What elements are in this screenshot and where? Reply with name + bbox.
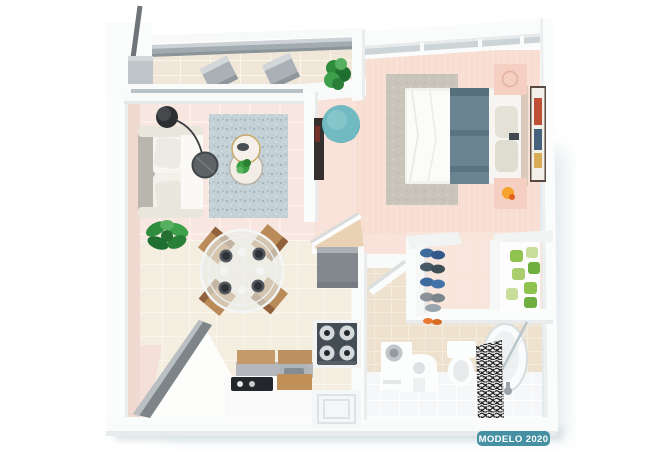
svg-text:MODELO 2020: MODELO 2020	[479, 434, 549, 445]
